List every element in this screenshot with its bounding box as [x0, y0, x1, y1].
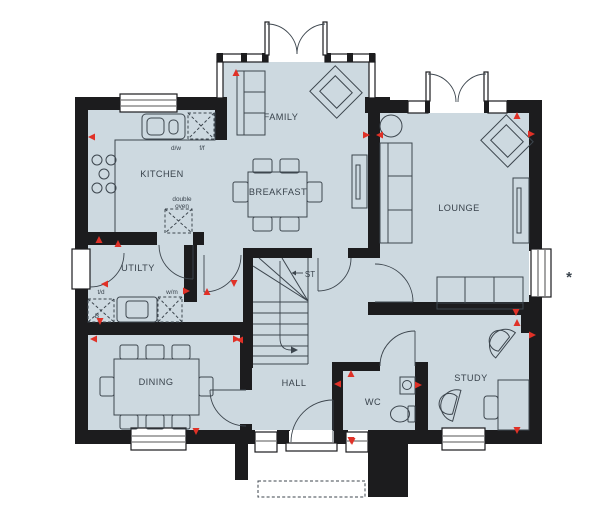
dishwasher-label: d/w [171, 145, 181, 152]
fridge-freezer-label: f/f [199, 145, 205, 152]
hall-label: HALL [282, 378, 307, 388]
porch-steps [258, 481, 365, 497]
dining-window [131, 428, 186, 450]
lounge-label: LOUNGE [438, 203, 480, 213]
lounge-sill-window-right [488, 101, 507, 113]
boiler-label: B [95, 313, 99, 320]
utility-label: UTILTY [121, 263, 155, 273]
wc-label: WC [365, 397, 381, 407]
wall-breakfast-lounge [368, 110, 380, 258]
wall-bottom-5 [368, 430, 442, 444]
wall-stairs-north [243, 248, 312, 258]
porch-window-left [255, 432, 277, 452]
wall-lounge-top-right [507, 100, 542, 113]
wall-utility-north-right [193, 232, 204, 245]
tumble-dryer-label: t/d [97, 289, 105, 296]
wall-stairs-west [243, 258, 253, 368]
store-label: ST [305, 270, 315, 279]
floor-family-bay [223, 62, 370, 110]
wall-porch-right [368, 444, 408, 497]
wall-study-notch [521, 315, 534, 333]
lounge-side-window [531, 249, 551, 297]
wall-porch-left [235, 444, 248, 480]
bay-window-return-right [369, 62, 375, 98]
study-label: STUDY [454, 373, 487, 383]
wall-kitchen-top-right [175, 97, 218, 110]
wall-bottom-1 [75, 430, 133, 444]
wall-kitchen-bay-stub [215, 97, 227, 140]
study-window [442, 428, 485, 450]
wall-utility-south [88, 322, 252, 335]
kitchen-label: KITCHEN [140, 169, 183, 179]
wall-wc-west [332, 362, 343, 430]
lounge-french-doors [426, 72, 488, 102]
wall-utility-east [184, 245, 197, 302]
kitchen-window [120, 94, 177, 112]
porch-window-right [346, 432, 368, 452]
floorplan-canvas: FAMILY KITCHEN BREAKFAST LOUNGE UTILTY D… [0, 0, 609, 530]
wall-bottom-3 [277, 430, 290, 444]
wall-breakfast-hall-east [348, 248, 368, 258]
double-oven-label-line1: double [172, 196, 192, 203]
wall-bottom-6 [485, 430, 542, 444]
washing-machine-label: w/m [165, 289, 178, 296]
double-oven-label-line2: oven [175, 203, 189, 210]
breakfast-label: BREAKFAST [249, 187, 307, 197]
floorplan-drawing: FAMILY KITCHEN BREAKFAST LOUNGE UTILTY D… [0, 0, 609, 530]
family-label: FAMILY [264, 112, 299, 122]
wall-left-lower [75, 288, 88, 430]
wall-wc-east [415, 362, 428, 430]
wall-lounge-top-left [380, 100, 408, 113]
window-note-asterisk: * [566, 269, 572, 286]
dining-label: DINING [139, 377, 174, 387]
wall-left-upper [75, 110, 88, 250]
wall-kitchen-top-left [75, 97, 122, 110]
family-french-doors [265, 22, 327, 55]
wall-wc-north [332, 362, 380, 371]
bay-window-return-left [217, 62, 223, 98]
